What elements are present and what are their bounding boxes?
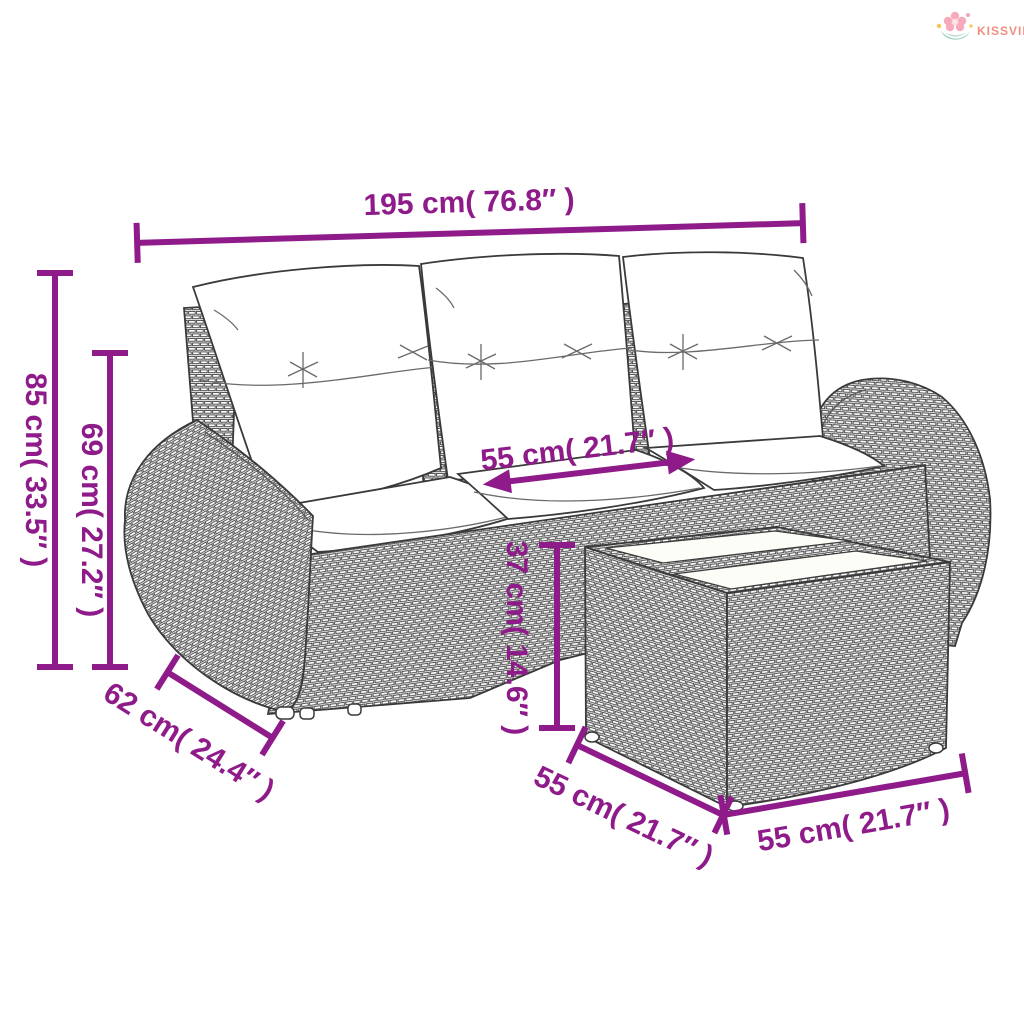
table-foot xyxy=(585,732,599,742)
flower-icon xyxy=(944,12,966,31)
leaf-icon xyxy=(945,32,966,37)
table-height-label: 37 cm( 14.6″ ) xyxy=(500,541,533,735)
sparkle-icon xyxy=(937,24,941,28)
dimension-overall-width: 195 cm( 76.8″ ) xyxy=(136,176,804,263)
ottoman-table xyxy=(585,527,950,811)
table-right-face xyxy=(727,562,950,807)
dimension-back-height: 69 cm( 27.2″ ) xyxy=(75,353,128,667)
sofa-foot xyxy=(276,707,294,719)
overall-width-label: 195 cm( 76.8″ ) xyxy=(363,183,575,222)
product-dimension-diagram: 195 cm( 76.8″ ) 85 cm( 33.5″ ) 69 cm( 27… xyxy=(0,0,1024,1024)
back-height-label: 69 cm( 27.2″ ) xyxy=(75,423,108,617)
sofa-foot xyxy=(300,708,314,719)
dimension-overall-height: 85 cm( 33.5″ ) xyxy=(19,273,73,667)
sparkle-icon xyxy=(969,24,972,27)
sparkle-icon xyxy=(966,13,970,17)
sofa-foot xyxy=(348,704,361,715)
brand-name: KISSVILÁG xyxy=(977,23,1024,38)
overall-height-label: 85 cm( 33.5″ ) xyxy=(19,373,52,567)
leaf-icon xyxy=(941,30,970,40)
table-foot xyxy=(929,743,943,753)
brand-logo: KISSVILÁG xyxy=(937,12,1024,40)
